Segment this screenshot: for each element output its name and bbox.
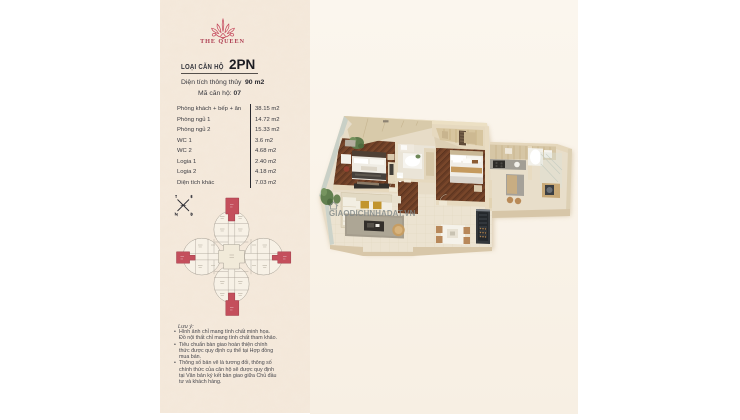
svg-text:GIAODICHNHADAT.VN: GIAODICHNHADAT.VN [329, 209, 416, 218]
